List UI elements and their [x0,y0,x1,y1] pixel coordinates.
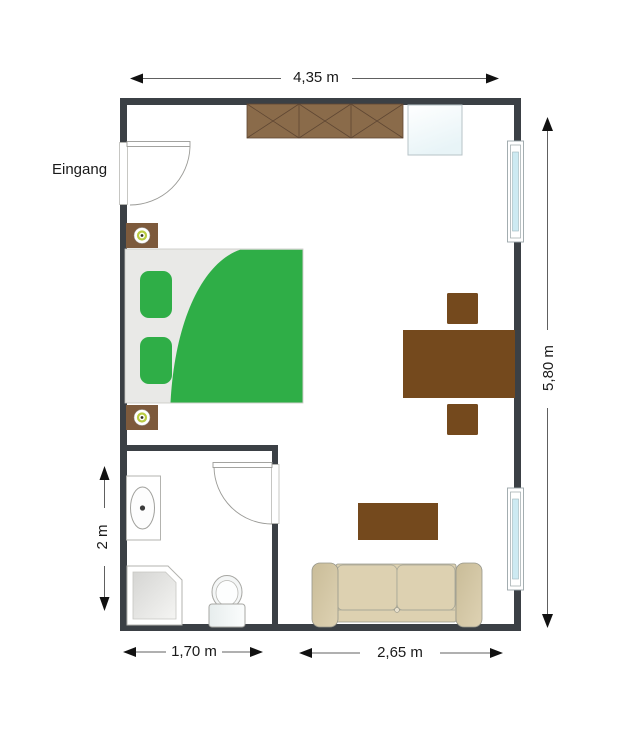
entrance-door-icon [120,142,191,206]
arrow-right-icon [490,648,503,658]
bathroom-door-icon [213,463,279,525]
sofa-seam-knob [395,608,400,613]
shower-icon [127,566,182,625]
bathroom-door-opening [272,465,280,524]
bathroom-door-leaf [213,463,272,468]
lamp-dot [141,416,144,419]
pillow-icon [140,337,172,384]
entrance-door-leaf [127,142,190,147]
dimension-living-width-label: 2,65 m [360,645,440,661]
lamp-dot [141,234,144,237]
dining-set [403,293,515,435]
toilet-tank [209,604,245,627]
wall-bathroom-top [120,445,278,451]
dining-table-icon [403,330,515,398]
window-lower-icon [508,488,524,590]
sofa-icon [312,563,482,627]
coffee-table-icon [358,503,438,540]
entrance-label: Eingang [52,162,107,178]
pillow-icon [140,271,172,318]
wall-bathroom-right-upper [272,445,278,465]
entrance-door-opening [120,143,128,205]
arrow-down-icon [542,614,553,628]
window-glass [513,499,519,579]
floor-plan-canvas: Eingang 4,35 m 5,80 m 2 m 1,70 m 2,65 m [0,0,640,731]
drain-dot [140,505,145,510]
arrow-right-icon [486,74,499,84]
sofa-armrest-left [312,563,338,627]
dimension-bathroom-width-label: 1,70 m [158,644,230,660]
window-upper-icon [508,141,524,242]
arrow-right-icon [250,647,263,657]
minibar-cabinet-icon [408,105,462,155]
bathroom-door-swing-arc [214,467,272,524]
sofa-cushion [337,565,397,610]
sofa-cushion [397,565,455,610]
wall-left-upper [120,98,127,143]
arrow-left-icon [123,647,136,657]
wall-bathroom-right-lower [272,523,278,631]
dimension-room-width-label: 4,35 m [270,70,362,86]
toilet-icon [209,576,245,628]
dimension-room-height-label: 5,80 m [541,328,557,408]
dimension-bathroom-height-label: 2 m [95,497,111,577]
nightstand-lower [126,405,158,430]
chair-icon [447,293,478,324]
nightstand-upper [126,223,158,248]
arrow-left-icon [299,648,312,658]
double-bed-icon [125,249,303,403]
window-glass [513,152,519,231]
arrow-down-icon [100,597,110,611]
chair-icon [447,404,478,435]
washbasin-icon [127,476,161,540]
arrow-up-icon [542,117,553,131]
wardrobe-icon [247,104,403,138]
shower-tray-inner [133,572,176,619]
entrance-door-swing-arc [130,147,190,205]
sofa-armrest-right [456,563,482,627]
toilet-seat [216,581,238,606]
arrow-up-icon [100,466,110,480]
arrow-left-icon [130,74,143,84]
